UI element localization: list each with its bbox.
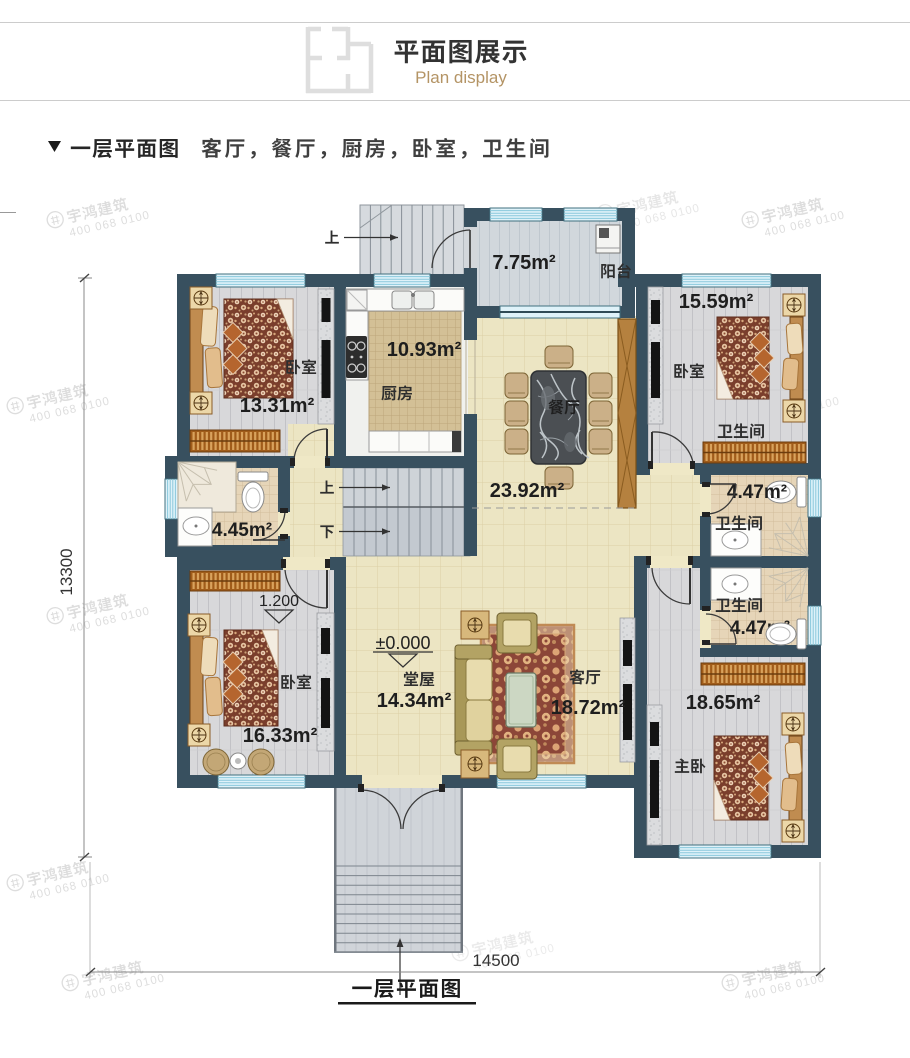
svg-text:13.31m²: 13.31m² (240, 395, 315, 417)
svg-text:1.200: 1.200 (259, 593, 299, 610)
svg-text:7.75m²: 7.75m² (492, 252, 556, 274)
svg-text:13300: 13300 (57, 548, 76, 595)
svg-text:±0.000: ±0.000 (376, 633, 431, 653)
svg-text:15.59m²: 15.59m² (679, 291, 754, 313)
svg-text:23.92m²: 23.92m² (490, 480, 565, 502)
svg-text:10.93m²: 10.93m² (387, 339, 462, 361)
svg-text:4.45m²: 4.45m² (212, 520, 272, 541)
svg-text:18.65m²: 18.65m² (686, 692, 761, 714)
svg-text:18.72m²: 18.72m² (551, 697, 626, 719)
svg-text:Plan display: Plan display (415, 68, 507, 87)
svg-text:14500: 14500 (472, 951, 519, 970)
svg-text:14.34m²: 14.34m² (377, 690, 452, 712)
svg-text:16.33m²: 16.33m² (243, 725, 318, 747)
